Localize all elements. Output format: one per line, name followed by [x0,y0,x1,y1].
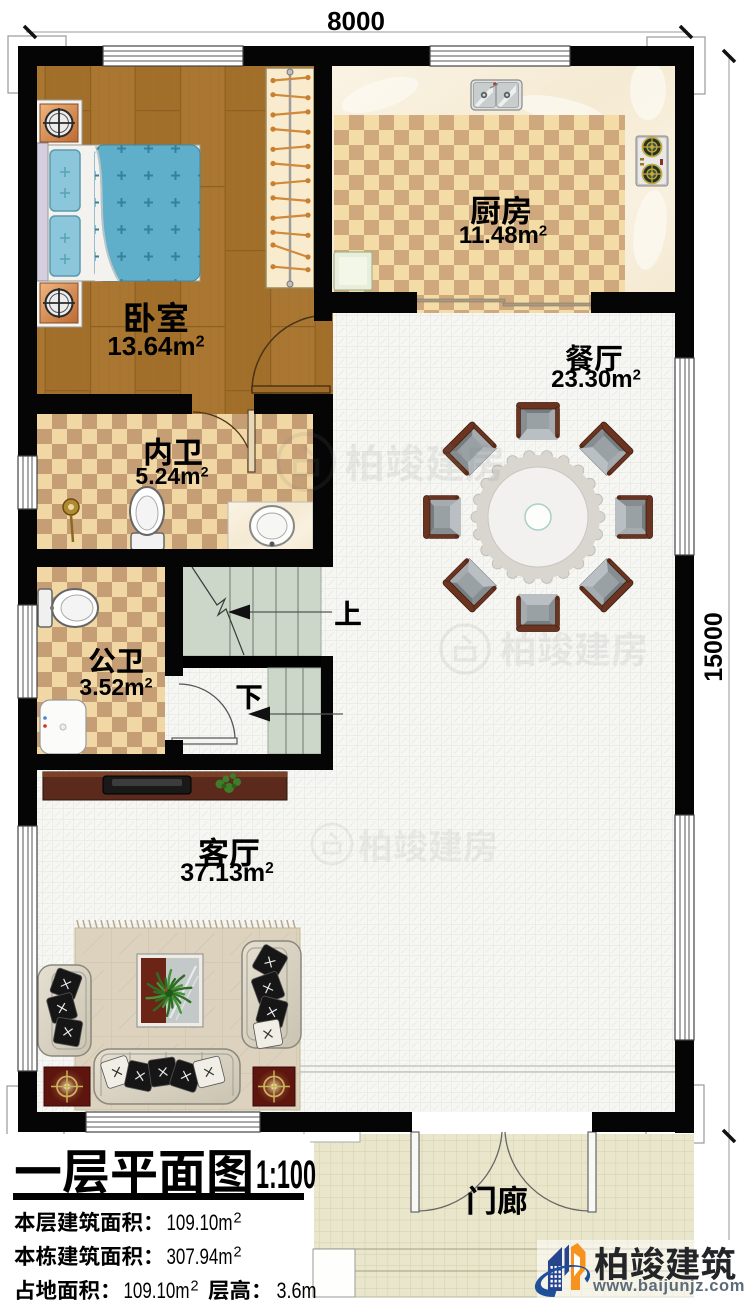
svg-text:11.48m2: 11.48m2 [459,222,547,249]
svg-text:109.10m: 109.10m [124,1278,190,1303]
svg-text:307.94m: 307.94m [167,1244,233,1269]
svg-text:37.13m2: 37.13m2 [180,859,273,887]
svg-text:2: 2 [234,1211,242,1227]
svg-text:15000: 15000 [700,612,728,682]
svg-text:3.6m: 3.6m [277,1278,317,1303]
svg-text:109.10m: 109.10m [167,1210,233,1235]
svg-text:8000: 8000 [327,6,385,36]
svg-text:2: 2 [191,1279,199,1295]
svg-text:5.24m2: 5.24m2 [135,463,208,489]
svg-text:www.baijunjz.com: www.baijunjz.com [592,1277,745,1295]
svg-text:1:100: 1:100 [256,1153,316,1197]
svg-text:2: 2 [234,1245,242,1261]
svg-text:3.52m2: 3.52m2 [79,674,152,700]
svg-text:13.64m2: 13.64m2 [107,331,204,361]
svg-text:23.30m2: 23.30m2 [551,366,641,393]
